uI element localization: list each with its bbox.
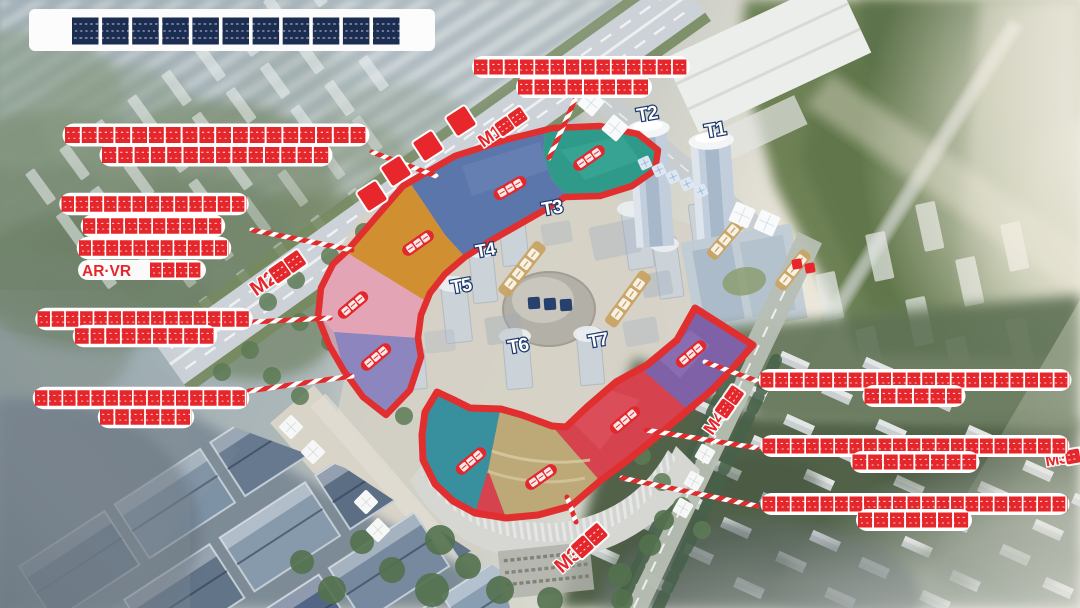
- svg-text:T3: T3: [540, 196, 564, 220]
- svg-text:T6: T6: [506, 334, 530, 358]
- svg-text:AR·VR: AR·VR: [82, 263, 131, 280]
- svg-text:T2: T2: [635, 102, 659, 126]
